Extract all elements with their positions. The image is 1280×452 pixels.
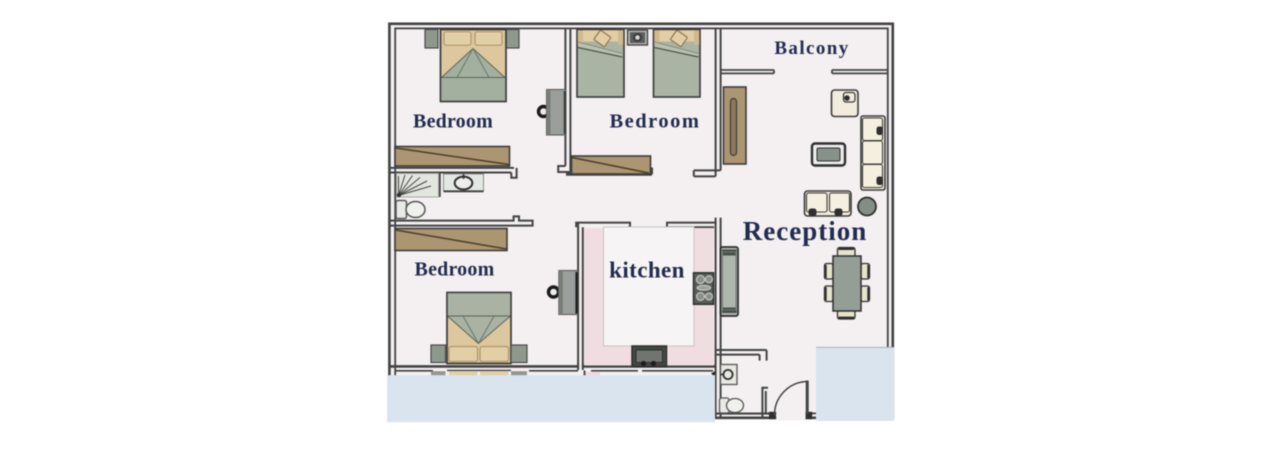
svg-text:kitchen: kitchen [609,258,685,283]
svg-text:Bedroom: Bedroom [610,111,701,133]
svg-text:Reception: Reception [743,216,867,246]
svg-text:Balcony: Balcony [774,38,849,59]
svg-text:Bedroom: Bedroom [413,111,493,133]
svg-text:Bedroom: Bedroom [415,259,495,281]
